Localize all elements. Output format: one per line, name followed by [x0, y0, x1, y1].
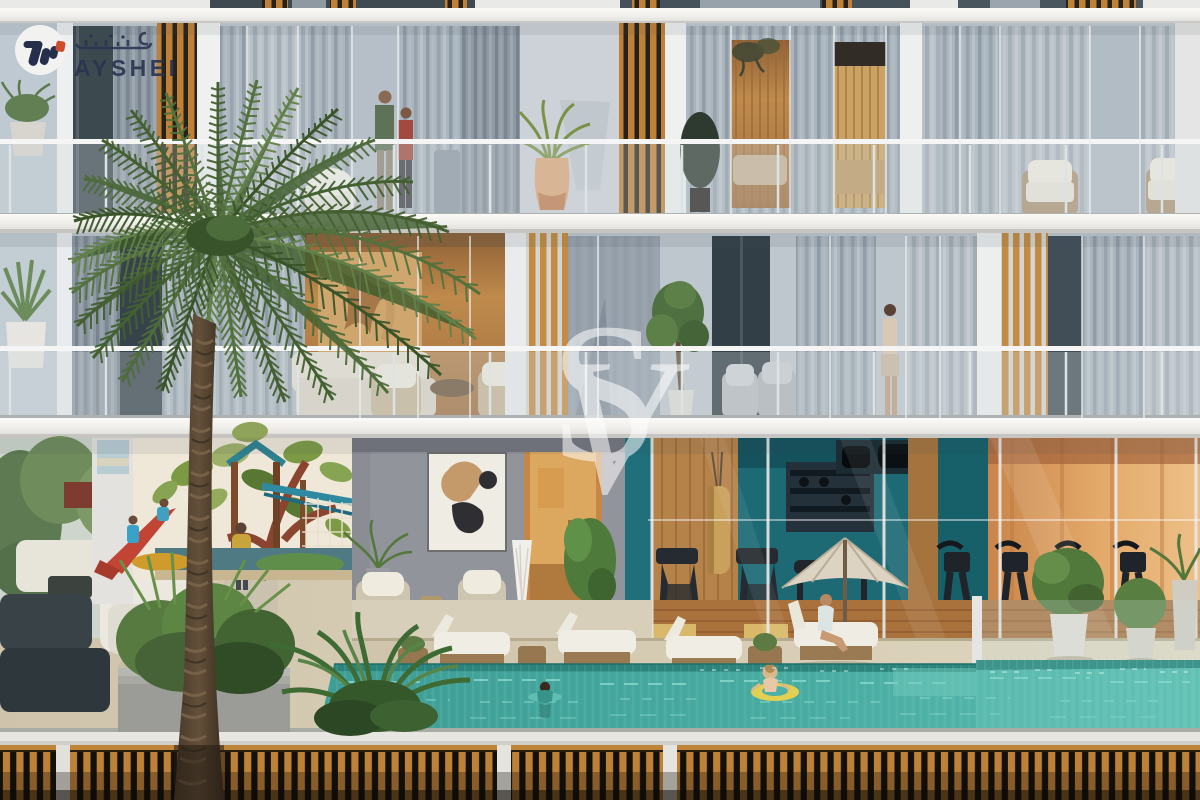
svg-text:AYSHEI: AYSHEI [74, 55, 179, 81]
svg-text:V: V [552, 319, 690, 535]
